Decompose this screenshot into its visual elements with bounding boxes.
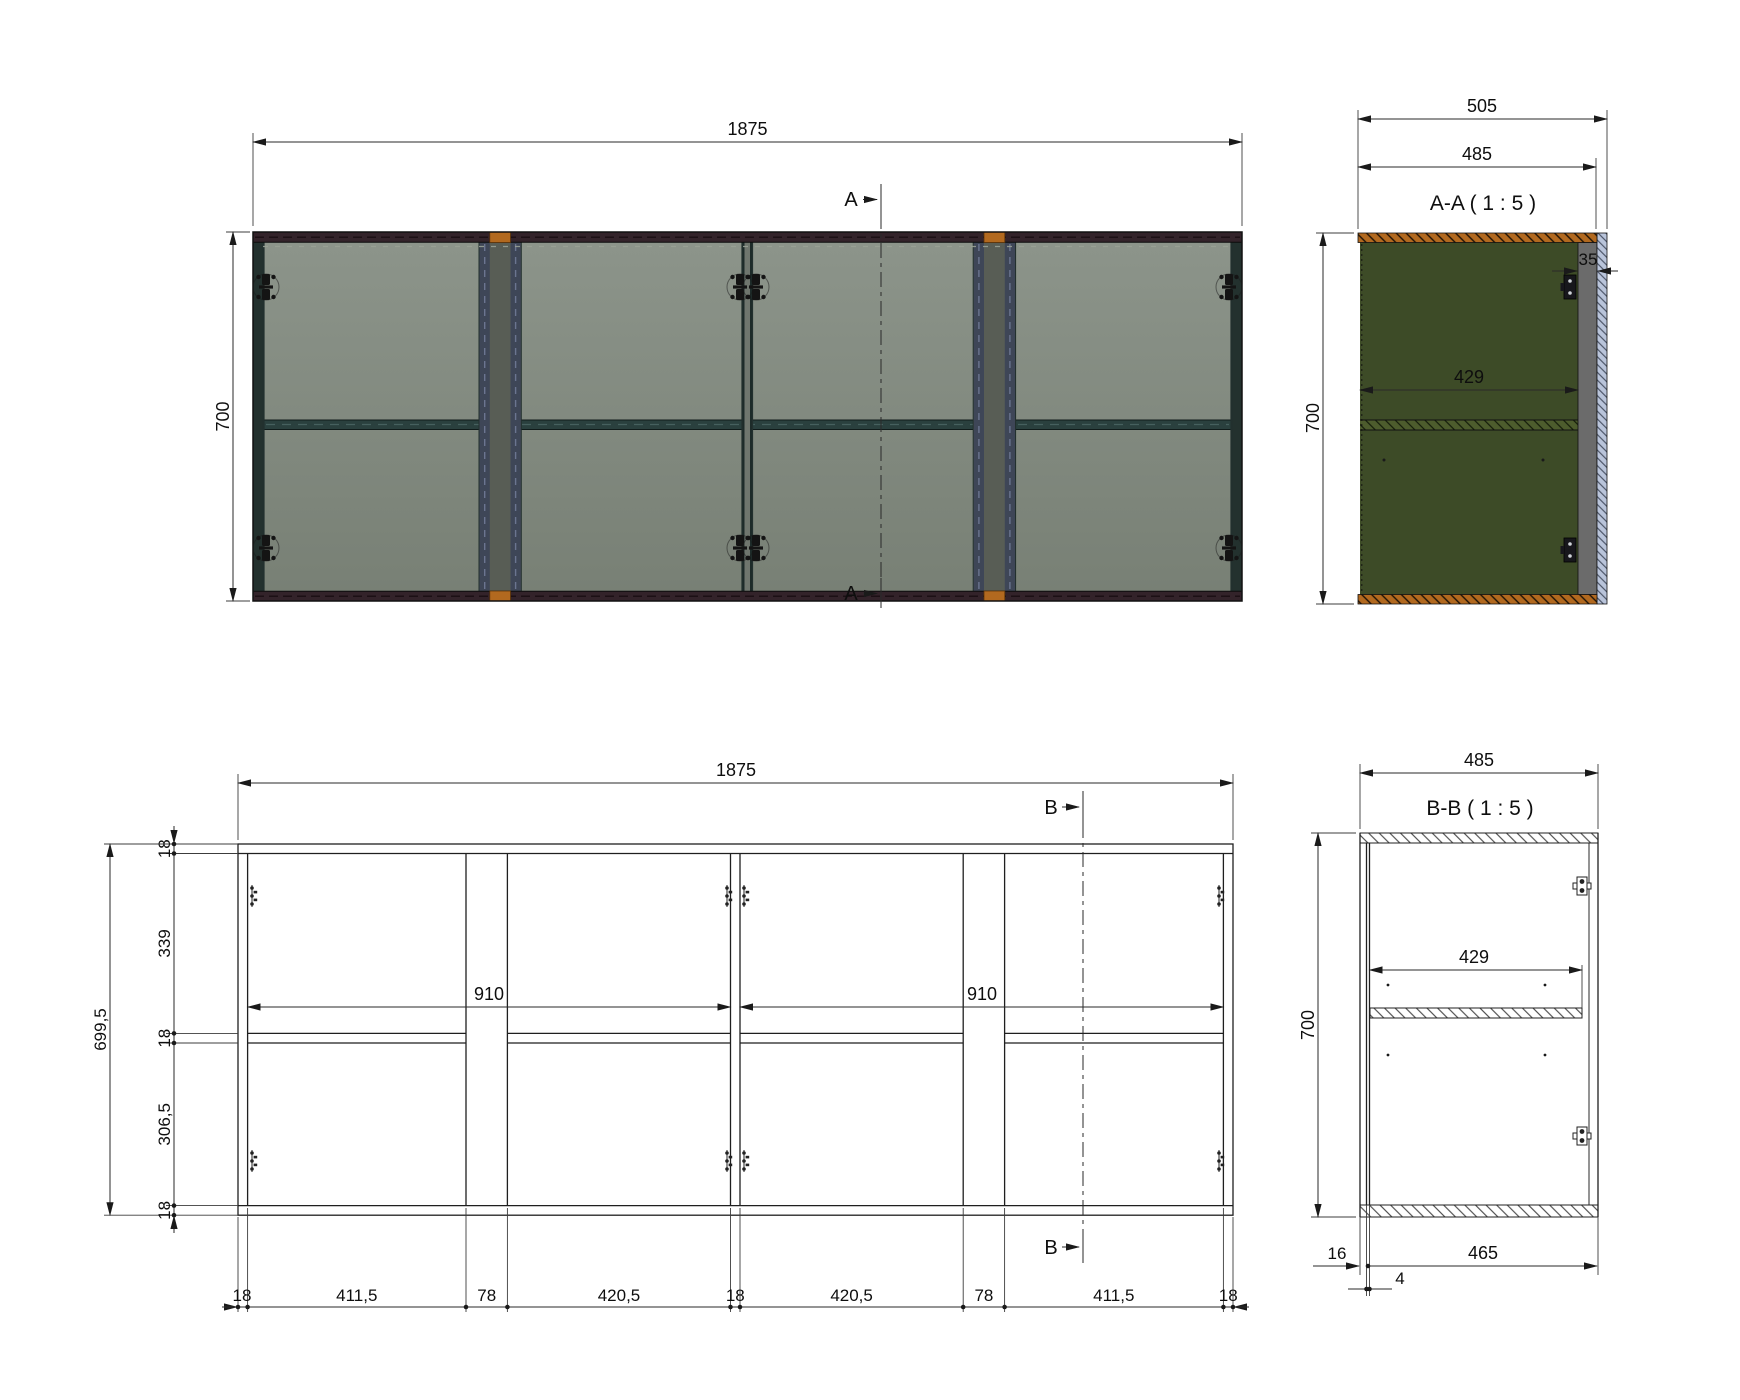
- chain-top-18: 18: [155, 839, 174, 858]
- bb-view-title: B-B ( 1 : 5 ): [1426, 797, 1533, 820]
- aa-view-title: A-A ( 1 : 5 ): [1430, 192, 1536, 215]
- dim-top-height: 700: [213, 232, 250, 601]
- partition-lines: [248, 854, 1224, 1206]
- dim-910-left: 910: [248, 984, 731, 1007]
- aa-wall-strip: [1597, 233, 1607, 604]
- bc-5: 420,5: [830, 1286, 873, 1305]
- top-view-width-label: 1875: [727, 119, 767, 139]
- bc-0: 18: [233, 1286, 252, 1305]
- dim-bb-bottom: 16 465 4: [1313, 1217, 1598, 1291]
- dim-aa-485: 485: [1358, 144, 1596, 229]
- dim-aa-700: 700: [1303, 233, 1354, 604]
- chain-shelf-18: 18: [155, 1029, 174, 1048]
- dim-elev-width: 1875: [238, 760, 1233, 840]
- shelf-lines: [248, 1033, 1224, 1043]
- bb-height-label: 700: [1298, 1010, 1318, 1040]
- aa-bottom-panel: [1358, 595, 1597, 605]
- dim-elev-height: 699,5: [91, 844, 110, 1215]
- section-line-b: B B: [1044, 791, 1083, 1263]
- aa-carcass-width-label: 485: [1462, 144, 1492, 164]
- section-marker-a-top: A: [844, 189, 858, 211]
- bc-6: 78: [974, 1286, 993, 1305]
- span-910-left-label: 910: [474, 984, 504, 1004]
- dim-top-width: 1875: [253, 119, 1242, 226]
- chain-bottom-18: 18: [155, 1201, 174, 1220]
- chain-306-5: 306,5: [155, 1103, 174, 1146]
- bb-shelf: [1370, 1008, 1582, 1018]
- chain-339: 339: [155, 929, 174, 957]
- elevation-outline: [238, 844, 1233, 1215]
- bb-interior-depth-label: 465: [1468, 1243, 1498, 1263]
- section-marker-b-bottom: B: [1044, 1237, 1057, 1259]
- bb-top-panel: [1360, 833, 1598, 843]
- bb-bottom-panel: [1360, 1205, 1598, 1217]
- aa-shelf: [1360, 420, 1578, 430]
- aa-door-panel: [1360, 243, 1578, 595]
- top-view-height-label: 700: [213, 401, 233, 431]
- technical-drawing-canvas: 1875 700 A A: [0, 0, 1740, 1400]
- bb-back-panel: [1367, 843, 1370, 1296]
- aa-height-label: 700: [1303, 403, 1323, 433]
- dim-910-right: 910: [740, 984, 1223, 1007]
- aa-side-offset-label: 35: [1579, 250, 1598, 269]
- section-marker-b-top: B: [1044, 797, 1057, 819]
- bb-width-label: 485: [1464, 750, 1494, 770]
- bc-8: 18: [1219, 1286, 1238, 1305]
- view-section-bb: 485 B-B ( 1 : 5 ) 700 429 16 465 4: [1298, 750, 1598, 1296]
- view-front-elevation: 1875 18 339 18 306,5 18 699,5: [91, 760, 1249, 1312]
- aa-side-panel: [1578, 243, 1597, 595]
- dim-bb-429: 429: [1370, 947, 1583, 1008]
- span-910-right-label: 910: [967, 984, 997, 1004]
- bc-3: 420,5: [598, 1286, 641, 1305]
- aa-overall-width-label: 505: [1467, 96, 1497, 116]
- elev-height-label: 699,5: [91, 1008, 110, 1051]
- bc-4: 18: [726, 1286, 745, 1305]
- divider-left: [480, 243, 521, 592]
- dim-bb-700: 700: [1298, 833, 1356, 1217]
- dim-bottom-chain: 18 411,5 78 420,5 18 420,5 78 411,5 18: [222, 1208, 1249, 1312]
- bb-back-gap-label: 4: [1395, 1269, 1404, 1288]
- bc-2: 78: [477, 1286, 496, 1305]
- elev-width-label: 1875: [716, 760, 756, 780]
- cad-drawing-sheet: 1875 700 A A: [0, 0, 1740, 1400]
- view-section-aa: 505 485 A-A ( 1 : 5 ) 700 429 35: [1303, 96, 1618, 604]
- section-marker-a-bottom: A: [844, 583, 858, 605]
- dim-left-chain: 18 339 18 306,5 18: [104, 826, 238, 1233]
- view-front-rendered: 1875 700 A A: [213, 119, 1242, 608]
- bc-7: 411,5: [1093, 1286, 1134, 1305]
- divider-right: [974, 243, 1015, 592]
- hinge-icons-elevation: [250, 885, 1224, 1172]
- aa-interior-width-label: 429: [1454, 367, 1484, 387]
- aa-top-panel: [1358, 233, 1597, 243]
- bc-1: 411,5: [336, 1286, 377, 1305]
- bb-back-thickness-label: 16: [1328, 1244, 1347, 1263]
- bb-interior-width-label: 429: [1459, 947, 1489, 967]
